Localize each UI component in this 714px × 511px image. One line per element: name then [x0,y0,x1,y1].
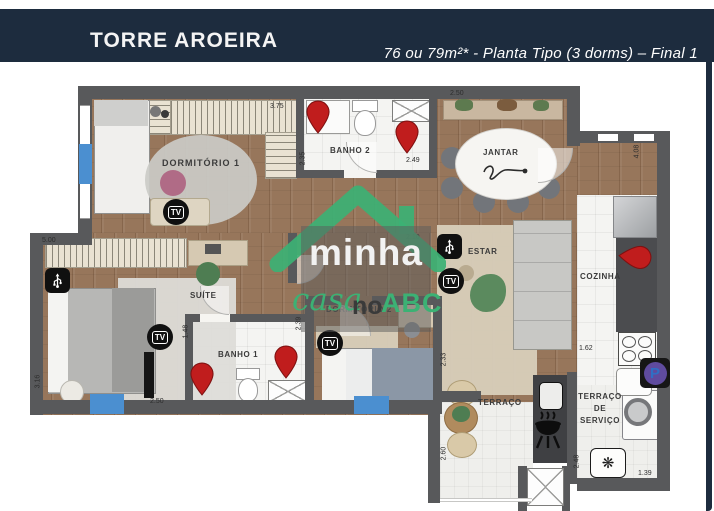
terraco-chair2 [447,432,477,458]
map-pin-cozinha [617,243,653,272]
floorplan-page: TORRE AROEIRA 76 ou 79m²* - Planta Tipo … [0,0,714,511]
logo-word-abc: ABC [381,288,443,319]
terraco-counter-sink [539,382,563,410]
wall-terraco-left [428,400,440,503]
terraco-label: TERRAÇO [478,398,522,407]
dim-suite-width: 5.00 [42,237,56,244]
wall-banho2-right [429,86,437,178]
blue-marker-dorm1 [79,144,92,184]
cozinha-label: COZINHA [580,272,621,281]
suite-plant [196,262,220,286]
servico-label-2: DE [570,404,630,413]
map-pin-banho2-b [394,120,420,154]
dim-jantar-width: 2.50 [450,90,464,97]
header-bar: TORRE AROEIRA 76 ou 79m²* - Planta Tipo … [0,9,714,62]
tv-icon-suite: TV [147,324,173,350]
dim-banho1-height: 1.48 [182,325,189,339]
usb-icon-suite [45,268,70,293]
strip-window2 [634,134,654,141]
right-page-border [706,10,712,511]
tv-icon-dorm1: TV [163,199,189,225]
wall-servico-bottom [577,478,670,491]
map-pin-banho1-a [189,362,215,396]
terraco-plant [452,406,470,422]
dorm1-bed-pillow [94,100,148,126]
tv-icon-dorm2: TV [317,330,343,356]
suite-label: SUÍTE [190,291,217,300]
dim-terraco-height: 2.60 [440,447,447,461]
dorm1-ottoman [160,170,186,196]
dim-right-height: 4.08 [633,145,640,159]
estar-sofa [513,220,572,350]
wall-right [657,131,670,483]
dorm1-decor2 [161,110,169,118]
estar-label: ESTAR [468,247,498,256]
dim-servico-width: 1.39 [638,470,652,477]
suite-tv-panel [144,352,154,398]
banho1-toilet [238,378,258,402]
suite-bed-pillows [48,288,68,392]
jantar-plant2 [497,99,517,111]
parking-icon: P [640,358,670,388]
servico-label-3: SERVIÇO [570,416,630,425]
wall-bottom-left [30,400,320,414]
blue-marker-dorm2 [354,396,389,414]
suite-laptop [205,244,221,254]
wall-jantar-right [567,86,580,146]
map-pin-banho1-b [273,345,299,379]
banho1-door-gap [200,314,230,322]
servico-label-1: TERRAÇO [570,392,630,401]
dorm2-bed-blanket [372,348,434,402]
condenser-fan-icon: ❋ [590,448,626,478]
wall-estar-terraco [433,391,481,402]
jantar-label: JANTAR [483,148,518,157]
banho2-shower [392,100,431,122]
jantar-decor-squiggle [480,158,532,184]
banho1-label: BANHO 1 [218,350,258,359]
shaft-box [527,468,564,506]
terraco-railing [440,498,532,502]
banho2-toilet [354,110,376,136]
dim-dorm2-right: 2.33 [440,353,447,367]
map-pin-banho2-a [305,100,331,134]
dim-suite-height: 3.16 [34,375,41,389]
bbq-grill-icon [532,410,566,450]
logo-word-no: no [352,292,383,321]
plan-subtitle: 76 ou 79m²* - Planta Tipo (3 dorms) – Fi… [384,45,698,62]
page-title: TORRE AROEIRA [90,29,278,53]
dim-servico-height: 2.48 [573,455,580,469]
dorm1-label: DORMITÓRIO 1 [162,158,240,168]
wall-shaft-left [518,466,527,511]
dorm1-side-closet [265,132,297,179]
dorm1-decor [150,106,161,117]
jantar-plant1 [455,99,473,111]
dorm2-bed-pillow [322,350,346,400]
dim-banho2-height: 2.35 [299,152,306,166]
banho2-label: BANHO 2 [330,146,370,155]
logo-word-minha: minha [309,232,423,274]
cozinha-fridge [613,196,657,238]
dim-suite-bottom: 2.50 [150,398,164,405]
jantar-plant3 [533,100,549,111]
strip-window1 [598,134,618,141]
dim-dorm1-width: 3.75 [270,103,284,110]
dim-banho2-width: 2.49 [406,157,420,164]
floor-wood-strip [577,143,667,195]
wall-banho2-left [296,98,304,178]
dim-cozinha-width: 1.62 [579,345,593,352]
blue-marker-suite [90,394,124,414]
wall-top [78,86,580,99]
